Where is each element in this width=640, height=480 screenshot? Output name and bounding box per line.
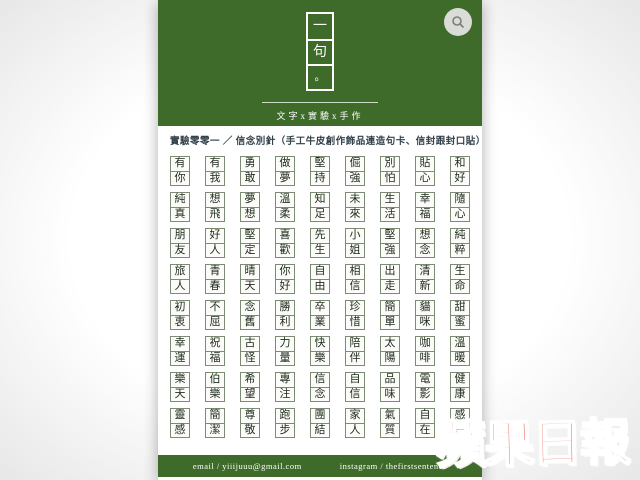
pin-char: 念: [310, 387, 330, 403]
pin-char: 旅: [170, 264, 190, 280]
page-card: 一 句 。 文字x實驗x手作 實驗零零一 ／ 信念別針（手工牛皮創作飾品連造句卡…: [158, 0, 482, 480]
pin-char: 初: [170, 300, 190, 316]
pin-char: 跑: [275, 408, 295, 424]
pin-char: 健: [450, 372, 470, 388]
apple-daily-watermark: 蘋果日報: [435, 402, 628, 477]
pin-char: 未: [345, 192, 365, 208]
site-logo[interactable]: 一 句 。: [306, 12, 334, 91]
pin-badge: 咖啡: [415, 336, 435, 366]
pin-char: 堅: [240, 228, 260, 244]
pin-badge: 勝利: [275, 300, 295, 330]
pin-char: 福: [205, 351, 225, 367]
pin-char: 太: [380, 336, 400, 352]
pin-char: 純: [450, 228, 470, 244]
pin-char: 柔: [275, 207, 295, 223]
pin-char: 堅: [380, 228, 400, 244]
pin-char: 貼: [415, 156, 435, 172]
pin-char: 敬: [240, 423, 260, 439]
pin-badge: 勇敢: [240, 156, 260, 186]
pin-char: 自: [345, 372, 365, 388]
pin-char: 尊: [240, 408, 260, 424]
logo-char: 句: [308, 39, 332, 64]
pin-char: 有: [170, 156, 190, 172]
pin-char: 怕: [380, 171, 400, 187]
pin-char: 幸: [170, 336, 190, 352]
pin-char: 電: [415, 372, 435, 388]
pin-badge: 樂天: [170, 372, 190, 402]
pin-badge: 和好: [450, 156, 470, 186]
pin-badge: 古怪: [240, 336, 260, 366]
pin-char: 勝: [275, 300, 295, 316]
pin-char: 定: [240, 243, 260, 259]
pin-badge: 純真: [170, 192, 190, 222]
pin-badge: 祝福: [205, 336, 225, 366]
pin-char: 專: [275, 372, 295, 388]
pin-char: 姐: [345, 243, 365, 259]
pin-badge: 先生: [310, 228, 330, 258]
pin-char: 想: [415, 228, 435, 244]
pin-badge: 信念: [310, 372, 330, 402]
pin-char: 簡: [380, 300, 400, 316]
pin-char: 我: [205, 171, 225, 187]
pin-char: 人: [205, 243, 225, 259]
pin-badge: 電影: [415, 372, 435, 402]
pin-char: 力: [275, 336, 295, 352]
pin-char: 樂: [205, 387, 225, 403]
pin-char: 春: [205, 279, 225, 295]
pin-badge: 出走: [380, 264, 400, 294]
pin-char: 夢: [275, 171, 295, 187]
pin-char: 天: [170, 387, 190, 403]
pin-char: 強: [380, 243, 400, 259]
pin-char: 生: [310, 243, 330, 259]
pin-badge: 朋友: [170, 228, 190, 258]
pin-badge: 想念: [415, 228, 435, 258]
pin-badge: 純粹: [450, 228, 470, 258]
pin-char: 由: [310, 279, 330, 295]
pin-char: 溫: [450, 336, 470, 352]
pin-char: 心: [415, 171, 435, 187]
pin-badge: 希望: [240, 372, 260, 402]
pin-badge: 夢想: [240, 192, 260, 222]
pin-char: 福: [415, 207, 435, 223]
pin-char: 隨: [450, 192, 470, 208]
pin-badge: 太陽: [380, 336, 400, 366]
site-tagline: 文字x實驗x手作: [276, 109, 363, 122]
pin-char: 簡: [205, 408, 225, 424]
pin-badge: 堅定: [240, 228, 260, 258]
pin-char: 暖: [450, 351, 470, 367]
pin-badge: 家人: [345, 408, 365, 438]
pin-badge: 清新: [415, 264, 435, 294]
pin-char: 清: [415, 264, 435, 280]
pin-char: 你: [275, 264, 295, 280]
search-button[interactable]: [444, 8, 472, 36]
pin-badge: 尊敬: [240, 408, 260, 438]
pin-badge: 快樂: [310, 336, 330, 366]
pin-char: 自: [310, 264, 330, 280]
pin-char: 青: [205, 264, 225, 280]
pin-char: 康: [450, 387, 470, 403]
pin-char: 小: [345, 228, 365, 244]
pin-badge: 青春: [205, 264, 225, 294]
pin-badge: 簡單: [380, 300, 400, 330]
pin-char: 好: [275, 279, 295, 295]
logo-char: 一: [308, 14, 332, 39]
pin-char: 好: [205, 228, 225, 244]
pin-badge: 生活: [380, 192, 400, 222]
pin-char: 希: [240, 372, 260, 388]
pin-char: 歡: [275, 243, 295, 259]
pin-badge: 自在: [415, 408, 435, 438]
pin-char: 飛: [205, 207, 225, 223]
pin-char: 晴: [240, 264, 260, 280]
pin-char: 卒: [310, 300, 330, 316]
search-icon: [451, 15, 465, 29]
pin-badge: 晴天: [240, 264, 260, 294]
pin-char: 樂: [170, 372, 190, 388]
pin-badge: 你好: [275, 264, 295, 294]
pin-badge: 做夢: [275, 156, 295, 186]
footer-instagram: instagram / thefirstsentence: [340, 461, 447, 471]
pin-char: 團: [310, 408, 330, 424]
pin-badge: 幸福: [415, 192, 435, 222]
pin-char: 潔: [205, 423, 225, 439]
pin-badge: 自信: [345, 372, 365, 402]
pin-char: 純: [170, 192, 190, 208]
pin-char: 想: [240, 207, 260, 223]
pin-char: 伴: [345, 351, 365, 367]
pin-char: 信: [310, 372, 330, 388]
pin-char: 咖: [415, 336, 435, 352]
product-title: 實驗零零一 ／ 信念別針（手工牛皮創作飾品連造句卡、信封跟封口貼）: [170, 133, 470, 147]
pin-char: 在: [415, 423, 435, 439]
pin-char: 足: [310, 207, 330, 223]
pin-badge: 不屈: [205, 300, 225, 330]
pin-char: 自: [415, 408, 435, 424]
pin-char: 真: [170, 207, 190, 223]
pin-badge: 陪伴: [345, 336, 365, 366]
pin-badge: 堅強: [380, 228, 400, 258]
pin-badge: 自由: [310, 264, 330, 294]
pin-char: 舊: [240, 315, 260, 331]
pin-char: 出: [380, 264, 400, 280]
pin-badge: 相信: [345, 264, 365, 294]
pin-badge: 力量: [275, 336, 295, 366]
pin-badge: 初衷: [170, 300, 190, 330]
pin-badge: 健康: [450, 372, 470, 402]
pin-char: 陽: [380, 351, 400, 367]
pin-badge: 貓咪: [415, 300, 435, 330]
pin-char: 屈: [205, 315, 225, 331]
pin-char: 粹: [450, 243, 470, 259]
pin-char: 友: [170, 243, 190, 259]
pin-badge: 隨心: [450, 192, 470, 222]
pin-char: 家: [345, 408, 365, 424]
pin-char: 做: [275, 156, 295, 172]
pin-char: 不: [205, 300, 225, 316]
pin-char: 注: [275, 387, 295, 403]
pin-badge: 伯樂: [205, 372, 225, 402]
pin-char: 感: [170, 423, 190, 439]
pin-char: 利: [275, 315, 295, 331]
pin-badge: 溫暖: [450, 336, 470, 366]
header-divider: [262, 102, 378, 103]
pin-badge: 幸運: [170, 336, 190, 366]
belief-pin-grid: 有你有我勇敢做夢堅持倔強別怕貼心和好純真想飛夢想溫柔知足未來生活幸福隨心朋友好人…: [170, 156, 470, 438]
site-header: 一 句 。 文字x實驗x手作: [158, 0, 482, 126]
pin-char: 人: [345, 423, 365, 439]
pin-char: 念: [240, 300, 260, 316]
pin-char: 惜: [345, 315, 365, 331]
pin-char: 步: [275, 423, 295, 439]
pin-char: 靈: [170, 408, 190, 424]
pin-char: 伯: [205, 372, 225, 388]
pin-badge: 好人: [205, 228, 225, 258]
pin-badge: 專注: [275, 372, 295, 402]
pin-char: 強: [345, 171, 365, 187]
pin-char: 來: [345, 207, 365, 223]
pin-char: 樂: [310, 351, 330, 367]
pin-char: 夢: [240, 192, 260, 208]
pin-char: 幸: [415, 192, 435, 208]
pin-char: 心: [450, 207, 470, 223]
pin-char: 信: [345, 279, 365, 295]
pin-char: 朋: [170, 228, 190, 244]
pin-char: 和: [450, 156, 470, 172]
pin-badge: 跑步: [275, 408, 295, 438]
pin-char: 活: [380, 207, 400, 223]
pin-char: 望: [240, 387, 260, 403]
pin-char: 知: [310, 192, 330, 208]
pin-char: 味: [380, 387, 400, 403]
pin-char: 別: [380, 156, 400, 172]
pin-char: 新: [415, 279, 435, 295]
pin-char: 質: [380, 423, 400, 439]
pin-char: 倔: [345, 156, 365, 172]
pin-char: 你: [170, 171, 190, 187]
pin-badge: 有你: [170, 156, 190, 186]
pin-char: 蜜: [450, 315, 470, 331]
pin-char: 氣: [380, 408, 400, 424]
pin-char: 衷: [170, 315, 190, 331]
pin-badge: 靈感: [170, 408, 190, 438]
pin-char: 品: [380, 372, 400, 388]
pin-char: 珍: [345, 300, 365, 316]
pin-badge: 品味: [380, 372, 400, 402]
pin-badge: 想飛: [205, 192, 225, 222]
pin-char: 單: [380, 315, 400, 331]
pin-badge: 甜蜜: [450, 300, 470, 330]
pin-char: 陪: [345, 336, 365, 352]
main-content: 實驗零零一 ／ 信念別針（手工牛皮創作飾品連造句卡、信封跟封口貼） 有你有我勇敢…: [158, 126, 482, 447]
site-footer: email / yiiijuuu@gmail.com instagram / t…: [158, 455, 482, 477]
pin-char: 堅: [310, 156, 330, 172]
pin-badge: 簡潔: [205, 408, 225, 438]
pin-badge: 旅人: [170, 264, 190, 294]
pin-char: 古: [240, 336, 260, 352]
pin-char: 人: [170, 279, 190, 295]
pin-char: 先: [310, 228, 330, 244]
pin-char: 量: [275, 351, 295, 367]
pin-badge: 堅持: [310, 156, 330, 186]
pin-badge: 倔強: [345, 156, 365, 186]
pin-char: 勇: [240, 156, 260, 172]
pin-badge: 喜歡: [275, 228, 295, 258]
pin-char: 想: [205, 192, 225, 208]
pin-char: 快: [310, 336, 330, 352]
pin-char: 業: [310, 315, 330, 331]
pin-char: 命: [450, 279, 470, 295]
logo-char: 。: [308, 64, 332, 89]
pin-char: 怪: [240, 351, 260, 367]
pin-badge: 氣質: [380, 408, 400, 438]
pin-char: 甜: [450, 300, 470, 316]
pin-badge: 溫柔: [275, 192, 295, 222]
pin-badge: 珍惜: [345, 300, 365, 330]
pin-badge: 有我: [205, 156, 225, 186]
pin-char: 祝: [205, 336, 225, 352]
pin-badge: 未來: [345, 192, 365, 222]
pin-badge: 念舊: [240, 300, 260, 330]
pin-badge: 團結: [310, 408, 330, 438]
pin-badge: 別怕: [380, 156, 400, 186]
pin-char: 溫: [275, 192, 295, 208]
pin-char: 信: [345, 387, 365, 403]
pin-char: 相: [345, 264, 365, 280]
pin-char: 貓: [415, 300, 435, 316]
pin-char: 生: [450, 264, 470, 280]
pin-char: 天: [240, 279, 260, 295]
pin-char: 敢: [240, 171, 260, 187]
pin-char: 好: [450, 171, 470, 187]
pin-badge: 知足: [310, 192, 330, 222]
pin-char: 持: [310, 171, 330, 187]
pin-badge: 小姐: [345, 228, 365, 258]
pin-char: 生: [380, 192, 400, 208]
pin-char: 走: [380, 279, 400, 295]
pin-char: 啡: [415, 351, 435, 367]
pin-char: 喜: [275, 228, 295, 244]
pin-char: 影: [415, 387, 435, 403]
pin-char: 結: [310, 423, 330, 439]
pin-char: 運: [170, 351, 190, 367]
pin-char: 念: [415, 243, 435, 259]
pin-badge: 貼心: [415, 156, 435, 186]
pin-char: 咪: [415, 315, 435, 331]
footer-email: email / yiiijuuu@gmail.com: [193, 461, 302, 471]
pin-badge: 生命: [450, 264, 470, 294]
pin-badge: 卒業: [310, 300, 330, 330]
pin-char: 有: [205, 156, 225, 172]
